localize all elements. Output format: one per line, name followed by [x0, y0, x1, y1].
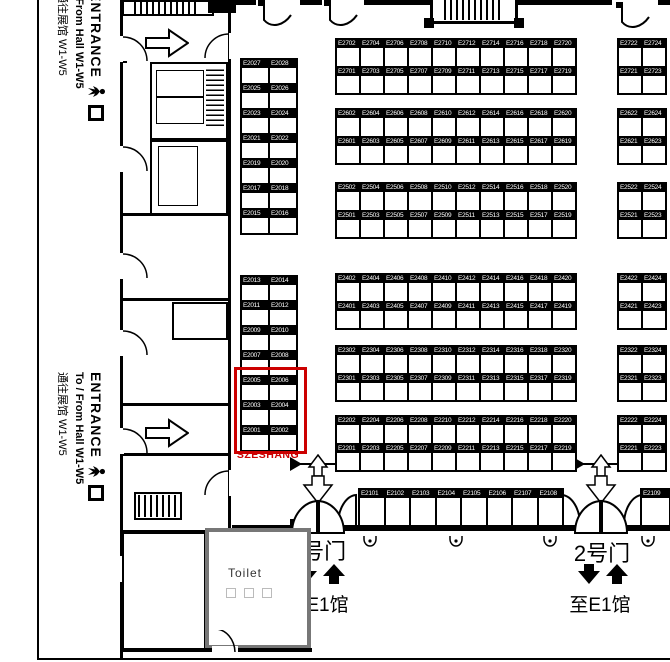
door-arc-icon	[122, 36, 148, 63]
booth-number-label: E2701	[337, 68, 359, 76]
booth-E2222[interactable]: E2222	[618, 416, 642, 444]
booth-number-label: E2323	[643, 375, 665, 383]
booth-E2024[interactable]: E2024	[269, 109, 297, 134]
booth-E2722[interactable]: E2722	[618, 39, 642, 67]
booth-E2313[interactable]: E2313	[480, 374, 504, 402]
booth-E2011[interactable]: E2011	[241, 301, 269, 326]
booth-number-label: E2028	[270, 60, 296, 68]
booth-E2615[interactable]: E2615	[504, 137, 528, 165]
bottom-border-line	[37, 658, 670, 660]
booth-E2405[interactable]: E2405	[384, 302, 408, 330]
booth-E2611[interactable]: E2611	[456, 137, 480, 165]
booth-number-label: E2019	[242, 160, 268, 168]
booth-E2619[interactable]: E2619	[552, 137, 576, 165]
booth-E2009[interactable]: E2009	[241, 326, 269, 351]
booth-E2301[interactable]: E2301	[336, 374, 360, 402]
booth-E2027[interactable]: E2027	[241, 59, 269, 84]
booth-E2014[interactable]: E2014	[269, 276, 297, 301]
booth-E2217[interactable]: E2217	[528, 444, 552, 472]
booth-E2214[interactable]: E2214	[480, 416, 504, 444]
toilet-stall-icon	[244, 588, 254, 598]
booth-E2019[interactable]: E2019	[241, 159, 269, 184]
booth-E2411[interactable]: E2411	[456, 302, 480, 330]
booth-number-label: E2222	[619, 417, 641, 425]
booth-E2719[interactable]: E2719	[552, 67, 576, 95]
booth-E2404[interactable]: E2404	[360, 274, 384, 302]
booth-E2624[interactable]: E2624	[642, 109, 666, 137]
booth-E2414[interactable]: E2414	[480, 274, 504, 302]
booth-E2323[interactable]: E2323	[642, 374, 666, 402]
booth-E2028[interactable]: E2028	[269, 59, 297, 84]
booth-E2223[interactable]: E2223	[642, 444, 666, 472]
entrance-mid-title: ENTRANCE	[88, 372, 104, 458]
booth-E2617[interactable]: E2617	[528, 137, 552, 165]
booth-number-label: E2220	[553, 417, 575, 425]
booth-number-label: E2204	[361, 417, 383, 425]
booth-number-label: E2711	[457, 68, 479, 76]
booth-number-label: E2720	[553, 40, 575, 48]
booth-number-label: E2206	[385, 417, 407, 425]
booth-number-label: E2413	[481, 303, 503, 311]
booth-number-label: E2102	[386, 490, 410, 498]
booth-number-label: E2606	[385, 110, 407, 118]
booth-E2517[interactable]: E2517	[528, 211, 552, 239]
booth-block-south-row: E2101E2102E2103E2104E2105E2106E2107E2108	[358, 488, 564, 527]
booth-number-label: E2501	[337, 212, 359, 220]
booth-number-label: E2723	[643, 68, 665, 76]
booth-E2407[interactable]: E2407	[408, 302, 432, 330]
booth-E2415[interactable]: E2415	[504, 302, 528, 330]
booth-E2213[interactable]: E2213	[480, 444, 504, 472]
booth-number-label: E2722	[619, 40, 641, 48]
corridor-arrow-right-icon	[145, 28, 189, 58]
booth-E2518[interactable]: E2518	[528, 183, 552, 211]
booth-number-label: E2513	[481, 212, 503, 220]
booth-E2403[interactable]: E2403	[360, 302, 384, 330]
booth-number-label: E2011	[242, 302, 268, 310]
booth-E2322[interactable]: E2322	[618, 346, 642, 374]
booth-E2613[interactable]: E2613	[480, 137, 504, 165]
booth-E2723[interactable]: E2723	[642, 67, 666, 95]
booth-E2704[interactable]: E2704	[360, 39, 384, 67]
booth-E2604[interactable]: E2604	[360, 109, 384, 137]
booth-number-label: E2304	[361, 347, 383, 355]
booth-number-label: E2703	[361, 68, 383, 76]
booth-E2714[interactable]: E2714	[480, 39, 504, 67]
booth-E2504[interactable]: E2504	[360, 183, 384, 211]
booth-number-label: E2404	[361, 275, 383, 283]
booth-E2621[interactable]: E2621	[618, 137, 642, 165]
booth-E2616[interactable]: E2616	[504, 109, 528, 137]
toilet-stall-icon	[262, 588, 272, 598]
booth-number-label: E2224	[643, 417, 665, 425]
booth-E2314[interactable]: E2314	[480, 346, 504, 374]
booth-E2510[interactable]: E2510	[432, 183, 456, 211]
booth-E2703[interactable]: E2703	[360, 67, 384, 95]
booth-number-label: E2517	[529, 212, 551, 220]
booth-E2717[interactable]: E2717	[528, 67, 552, 95]
booth-E2706[interactable]: E2706	[384, 39, 408, 67]
booth-E2021[interactable]: E2021	[241, 134, 269, 159]
booth-E2513[interactable]: E2513	[480, 211, 504, 239]
booth-E2503[interactable]: E2503	[360, 211, 384, 239]
booth-E2516[interactable]: E2516	[504, 183, 528, 211]
booth-E2106[interactable]: E2106	[487, 489, 513, 526]
booth-E2315[interactable]: E2315	[504, 374, 528, 402]
booth-E2307[interactable]: E2307	[408, 374, 432, 402]
booth-number-label: E2702	[337, 40, 359, 48]
booth-E2312[interactable]: E2312	[456, 346, 480, 374]
left-border-line	[37, 0, 39, 660]
booth-E2309[interactable]: E2309	[432, 374, 456, 402]
booth-number-label: E2219	[553, 445, 575, 453]
wall-segment	[123, 298, 228, 301]
booth-number-label: E2518	[529, 184, 551, 192]
booth-number-label: E2421	[619, 303, 641, 311]
booth-E2012[interactable]: E2012	[269, 301, 297, 326]
booth-E2413[interactable]: E2413	[480, 302, 504, 330]
booth-E2701[interactable]: E2701	[336, 67, 360, 95]
booth-E2013[interactable]: E2013	[241, 276, 269, 301]
booth-E2406[interactable]: E2406	[384, 274, 408, 302]
booth-number-label: E2208	[409, 417, 431, 425]
person-icon	[87, 85, 105, 98]
booth-E2311[interactable]: E2311	[456, 374, 480, 402]
booth-E2221[interactable]: E2221	[618, 444, 642, 472]
booth-E2108[interactable]: E2108	[538, 489, 564, 526]
booth-E2520[interactable]: E2520	[552, 183, 576, 211]
booth-number-label: E2524	[643, 184, 665, 192]
booth-E2104[interactable]: E2104	[436, 489, 462, 526]
booth-number-label: E2211	[457, 445, 479, 453]
booth-E2507[interactable]: E2507	[408, 211, 432, 239]
booth-E2203[interactable]: E2203	[360, 444, 384, 472]
booth-number-label: E2712	[457, 40, 479, 48]
booth-E2302[interactable]: E2302	[336, 346, 360, 374]
booth-number-label: E2022	[270, 135, 296, 143]
booth-number-label: E2303	[361, 375, 383, 383]
booth-number-label: E2615	[505, 138, 527, 146]
booth-E2416[interactable]: E2416	[504, 274, 528, 302]
booth-E2207[interactable]: E2207	[408, 444, 432, 472]
booth-number-label: E2514	[481, 184, 503, 192]
booth-E2210[interactable]: E2210	[432, 416, 456, 444]
booth-number-label: E2321	[619, 375, 641, 383]
entrance-mid-text-zh: 通往展馆 W1-W5	[55, 372, 71, 501]
booth-E2421[interactable]: E2421	[618, 302, 642, 330]
booth-E2020[interactable]: E2020	[269, 159, 297, 184]
booth-E2204[interactable]: E2204	[360, 416, 384, 444]
booth-E2026[interactable]: E2026	[269, 84, 297, 109]
booth-E2424[interactable]: E2424	[642, 274, 666, 302]
booth-block-main-e25: E2502E2504E2506E2508E2510E2512E2514E2516…	[335, 182, 577, 239]
booth-number-label: E2508	[409, 184, 431, 192]
booth-number-label: E2603	[361, 138, 383, 146]
booth-number-label: E2515	[505, 212, 527, 220]
booth-E2512[interactable]: E2512	[456, 183, 480, 211]
booth-E2321[interactable]: E2321	[618, 374, 642, 402]
booth-E2506[interactable]: E2506	[384, 183, 408, 211]
booth-E2303[interactable]: E2303	[360, 374, 384, 402]
booth-E2101[interactable]: E2101	[359, 489, 385, 526]
door-icon	[88, 105, 104, 121]
booth-number-label: E2611	[457, 138, 479, 146]
booth-E2519[interactable]: E2519	[552, 211, 576, 239]
booth-E2423[interactable]: E2423	[642, 302, 666, 330]
booth-number-label: E2505	[385, 212, 407, 220]
booth-E2711[interactable]: E2711	[456, 67, 480, 95]
door-arc-icon	[212, 630, 238, 652]
booth-number-label: E2422	[619, 275, 641, 283]
booth-number-label: E2315	[505, 375, 527, 383]
booth-number-label: E2717	[529, 68, 551, 76]
booth-E2509[interactable]: E2509	[432, 211, 456, 239]
booth-E2324[interactable]: E2324	[642, 346, 666, 374]
exhibition-floor-plan: 1号门 至E1馆 2号门 至E1馆 Toilet ENTRANCE / From…	[0, 0, 670, 662]
booth-E2720[interactable]: E2720	[552, 39, 576, 67]
booth-E2708[interactable]: E2708	[408, 39, 432, 67]
booth-E2202[interactable]: E2202	[336, 416, 360, 444]
booth-E2109[interactable]: E2109	[641, 489, 670, 526]
booth-number-label: E2314	[481, 347, 503, 355]
booth-E2320[interactable]: E2320	[552, 346, 576, 374]
booth-E2419[interactable]: E2419	[552, 302, 576, 330]
door-closer-icon	[362, 536, 378, 549]
booth-E2709[interactable]: E2709	[432, 67, 456, 95]
booth-E2515[interactable]: E2515	[504, 211, 528, 239]
booth-E2702[interactable]: E2702	[336, 39, 360, 67]
booth-E2505[interactable]: E2505	[384, 211, 408, 239]
booth-E2705[interactable]: E2705	[384, 67, 408, 95]
booth-E2306[interactable]: E2306	[384, 346, 408, 374]
booth-number-label: E2106	[488, 490, 512, 498]
booth-number-label: E2023	[242, 110, 268, 118]
booth-E2402[interactable]: E2402	[336, 274, 360, 302]
entrance-mid-text-en: To / From Hall W1-W5	[73, 372, 85, 501]
booth-E2609[interactable]: E2609	[432, 137, 456, 165]
booth-number-label: E2310	[433, 347, 455, 355]
booth-E2417[interactable]: E2417	[528, 302, 552, 330]
booth-E2718[interactable]: E2718	[528, 39, 552, 67]
booth-E2620[interactable]: E2620	[552, 109, 576, 137]
booth-E2721[interactable]: E2721	[618, 67, 642, 95]
booth-number-label: E2302	[337, 347, 359, 355]
booth-block-main-e22: E2202E2204E2206E2208E2210E2212E2214E2216…	[335, 415, 577, 472]
booth-E2205[interactable]: E2205	[384, 444, 408, 472]
booth-number-label: E2318	[529, 347, 551, 355]
booth-number-label: E2614	[481, 110, 503, 118]
booth-E2215[interactable]: E2215	[504, 444, 528, 472]
booth-E2305[interactable]: E2305	[384, 374, 408, 402]
booth-E2501[interactable]: E2501	[336, 211, 360, 239]
booth-E2212[interactable]: E2212	[456, 416, 480, 444]
booth-E2010[interactable]: E2010	[269, 326, 297, 351]
service-room	[122, 532, 206, 650]
booth-number-label: E2016	[270, 210, 296, 218]
booth-E2618[interactable]: E2618	[528, 109, 552, 137]
booth-number-label: E2714	[481, 40, 503, 48]
booth-E2610[interactable]: E2610	[432, 109, 456, 137]
booth-number-label: E2408	[409, 275, 431, 283]
booth-number-label: E2319	[553, 375, 575, 383]
door-arc-icon	[204, 33, 230, 60]
booth-E2514[interactable]: E2514	[480, 183, 504, 211]
booth-E2601[interactable]: E2601	[336, 137, 360, 165]
booth-E2102[interactable]: E2102	[385, 489, 411, 526]
booth-E2502[interactable]: E2502	[336, 183, 360, 211]
booth-number-label: E2716	[505, 40, 527, 48]
booth-E2605[interactable]: E2605	[384, 137, 408, 165]
booth-E2206[interactable]: E2206	[384, 416, 408, 444]
booth-number-label: E2313	[481, 375, 503, 383]
booth-number-label: E2410	[433, 275, 455, 283]
booth-number-label: E2718	[529, 40, 551, 48]
booth-E2524[interactable]: E2524	[642, 183, 666, 211]
booth-E2713[interactable]: E2713	[480, 67, 504, 95]
booth-E2522[interactable]: E2522	[618, 183, 642, 211]
booth-number-label: E2405	[385, 303, 407, 311]
booth-E2622[interactable]: E2622	[618, 109, 642, 137]
gate2-direction-label: 至E1馆	[560, 590, 640, 617]
booth-number-label: E2721	[619, 68, 641, 76]
booth-number-label: E2101	[360, 490, 384, 498]
booth-number-label: E2706	[385, 40, 407, 48]
booth-number-label: E2212	[457, 417, 479, 425]
booth-number-label: E2301	[337, 375, 359, 383]
booth-block-right-e26: E2622E2624E2621E2623	[617, 108, 667, 165]
booth-E2105[interactable]: E2105	[461, 489, 487, 526]
door-closer-icon	[542, 536, 558, 549]
booth-E2410[interactable]: E2410	[432, 274, 456, 302]
booth-E2103[interactable]: E2103	[410, 489, 436, 526]
booth-E2521[interactable]: E2521	[618, 211, 642, 239]
booth-E2201[interactable]: E2201	[336, 444, 360, 472]
booth-E2304[interactable]: E2304	[360, 346, 384, 374]
booth-E2603[interactable]: E2603	[360, 137, 384, 165]
booth-number-label: E2013	[242, 277, 268, 285]
booth-E2607[interactable]: E2607	[408, 137, 432, 165]
booth-number-label: E2617	[529, 138, 551, 146]
booth-E2317[interactable]: E2317	[528, 374, 552, 402]
booth-number-label: E2209	[433, 445, 455, 453]
booth-number-label: E2012	[270, 302, 296, 310]
door-arc-icon	[122, 330, 148, 357]
booth-number-label: E2411	[457, 303, 479, 311]
booth-E2308[interactable]: E2308	[408, 346, 432, 374]
booth-E2408[interactable]: E2408	[408, 274, 432, 302]
booth-E2316[interactable]: E2316	[504, 346, 528, 374]
booth-E2724[interactable]: E2724	[642, 39, 666, 67]
booth-E2220[interactable]: E2220	[552, 416, 576, 444]
booth-E2219[interactable]: E2219	[552, 444, 576, 472]
booth-E2715[interactable]: E2715	[504, 67, 528, 95]
booth-E2623[interactable]: E2623	[642, 137, 666, 165]
booth-E2310[interactable]: E2310	[432, 346, 456, 374]
booth-E2523[interactable]: E2523	[642, 211, 666, 239]
booth-number-label: E2512	[457, 184, 479, 192]
booth-E2712[interactable]: E2712	[456, 39, 480, 67]
booth-E2401[interactable]: E2401	[336, 302, 360, 330]
booth-number-label: E2205	[385, 445, 407, 453]
booth-E2608[interactable]: E2608	[408, 109, 432, 137]
booth-E2017[interactable]: E2017	[241, 184, 269, 209]
booth-number-label: E2014	[270, 277, 296, 285]
booth-number-label: E2015	[242, 210, 268, 218]
wall-corner-block	[424, 18, 434, 28]
booth-E2710[interactable]: E2710	[432, 39, 456, 67]
booth-E2025[interactable]: E2025	[241, 84, 269, 109]
booth-E2319[interactable]: E2319	[552, 374, 576, 402]
to-e1-arrows-icon	[576, 564, 630, 586]
booth-block-right-e23: E2322E2324E2321E2323	[617, 345, 667, 402]
booth-E2208[interactable]: E2208	[408, 416, 432, 444]
booth-E2508[interactable]: E2508	[408, 183, 432, 211]
booth-E2602[interactable]: E2602	[336, 109, 360, 137]
booth-number-label: E2707	[409, 68, 431, 76]
booth-E2511[interactable]: E2511	[456, 211, 480, 239]
booth-E2023[interactable]: E2023	[241, 109, 269, 134]
booth-E2216[interactable]: E2216	[504, 416, 528, 444]
booth-E2412[interactable]: E2412	[456, 274, 480, 302]
booth-number-label: E2017	[242, 185, 268, 193]
booth-block-main-e26: E2602E2604E2606E2608E2610E2612E2614E2616…	[335, 108, 577, 165]
booth-E2015[interactable]: E2015	[241, 209, 269, 234]
booth-number-label: E2306	[385, 347, 407, 355]
booth-block-main-e27: E2702E2704E2706E2708E2710E2712E2714E2716…	[335, 38, 577, 95]
booth-E2409[interactable]: E2409	[432, 302, 456, 330]
booth-E2218[interactable]: E2218	[528, 416, 552, 444]
booth-E2018[interactable]: E2018	[269, 184, 297, 209]
entrance-top-text-en: / From Hall W1-W5	[73, 0, 85, 121]
booth-E2422[interactable]: E2422	[618, 274, 642, 302]
toilet-label: Toilet	[228, 566, 262, 580]
booth-block-right-e25: E2522E2524E2521E2523	[617, 182, 667, 239]
booth-E2318[interactable]: E2318	[528, 346, 552, 374]
booth-E2224[interactable]: E2224	[642, 416, 666, 444]
booth-number-label: E2416	[505, 275, 527, 283]
booth-E2209[interactable]: E2209	[432, 444, 456, 472]
door-arc-icon	[122, 253, 148, 280]
booth-E2606[interactable]: E2606	[384, 109, 408, 137]
booth-E2418[interactable]: E2418	[528, 274, 552, 302]
booth-block-main-e24: E2402E2404E2406E2408E2410E2412E2414E2416…	[335, 273, 577, 330]
booth-number-label: E2424	[643, 275, 665, 283]
entrance-top-text-zh: 通往展馆 W1-W5	[55, 0, 71, 121]
booth-number-label: E2312	[457, 347, 479, 355]
booth-E2716[interactable]: E2716	[504, 39, 528, 67]
door-closer-icon	[640, 536, 656, 549]
booth-number-label: E2305	[385, 375, 407, 383]
booth-number-label: E2609	[433, 138, 455, 146]
highlighted-booth-outline[interactable]	[234, 367, 307, 454]
booth-number-label: E2520	[553, 184, 575, 192]
booth-number-label: E2108	[539, 490, 563, 498]
booth-E2612[interactable]: E2612	[456, 109, 480, 137]
booth-E2211[interactable]: E2211	[456, 444, 480, 472]
booth-E2107[interactable]: E2107	[512, 489, 538, 526]
booth-E2016[interactable]: E2016	[269, 209, 297, 234]
booth-number-label: E2104	[437, 490, 461, 498]
booth-number-label: E2217	[529, 445, 551, 453]
booth-number-label: E2317	[529, 375, 551, 383]
booth-block-right-e22: E2222E2224E2221E2223	[617, 415, 667, 472]
booth-E2707[interactable]: E2707	[408, 67, 432, 95]
booth-number-label: E2322	[619, 347, 641, 355]
booth-E2022[interactable]: E2022	[269, 134, 297, 159]
booth-E2420[interactable]: E2420	[552, 274, 576, 302]
corridor-right-wall	[228, 0, 231, 530]
booth-E2614[interactable]: E2614	[480, 109, 504, 137]
